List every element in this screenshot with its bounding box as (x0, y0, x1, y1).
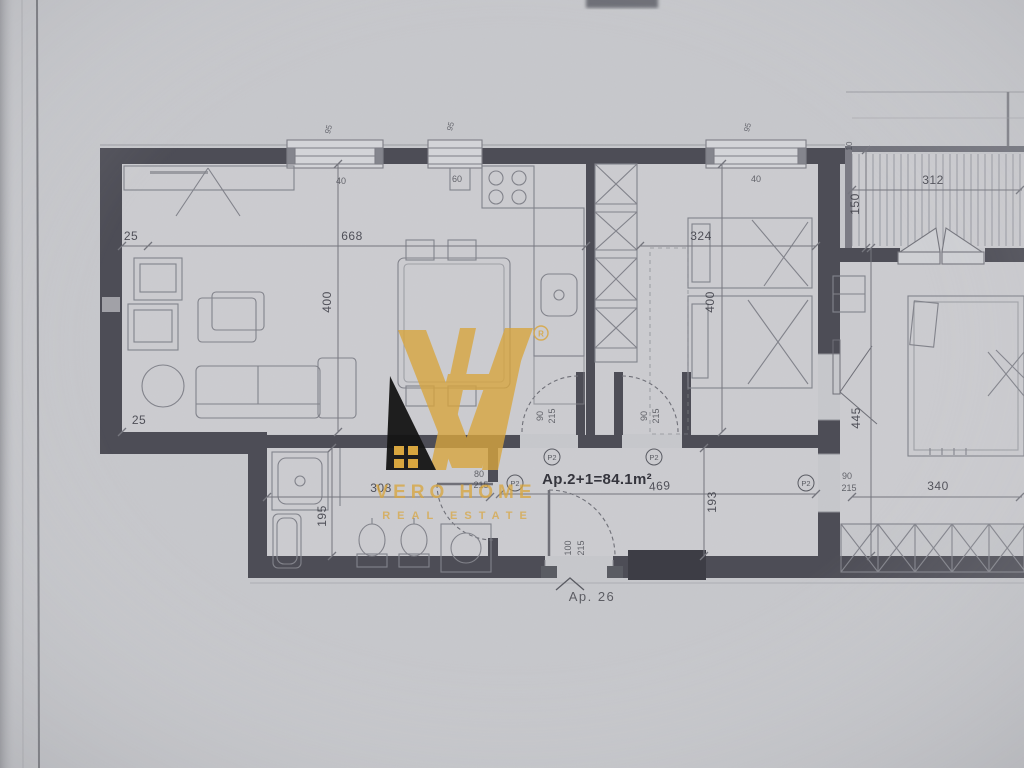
scan-vignette (0, 0, 1024, 768)
scanned-floor-plan-page: 25 668 400 25 324 400 312 150 10 445 340… (0, 0, 1024, 768)
floor-plan-svg: 25 668 400 25 324 400 312 150 10 445 340… (0, 0, 1024, 768)
